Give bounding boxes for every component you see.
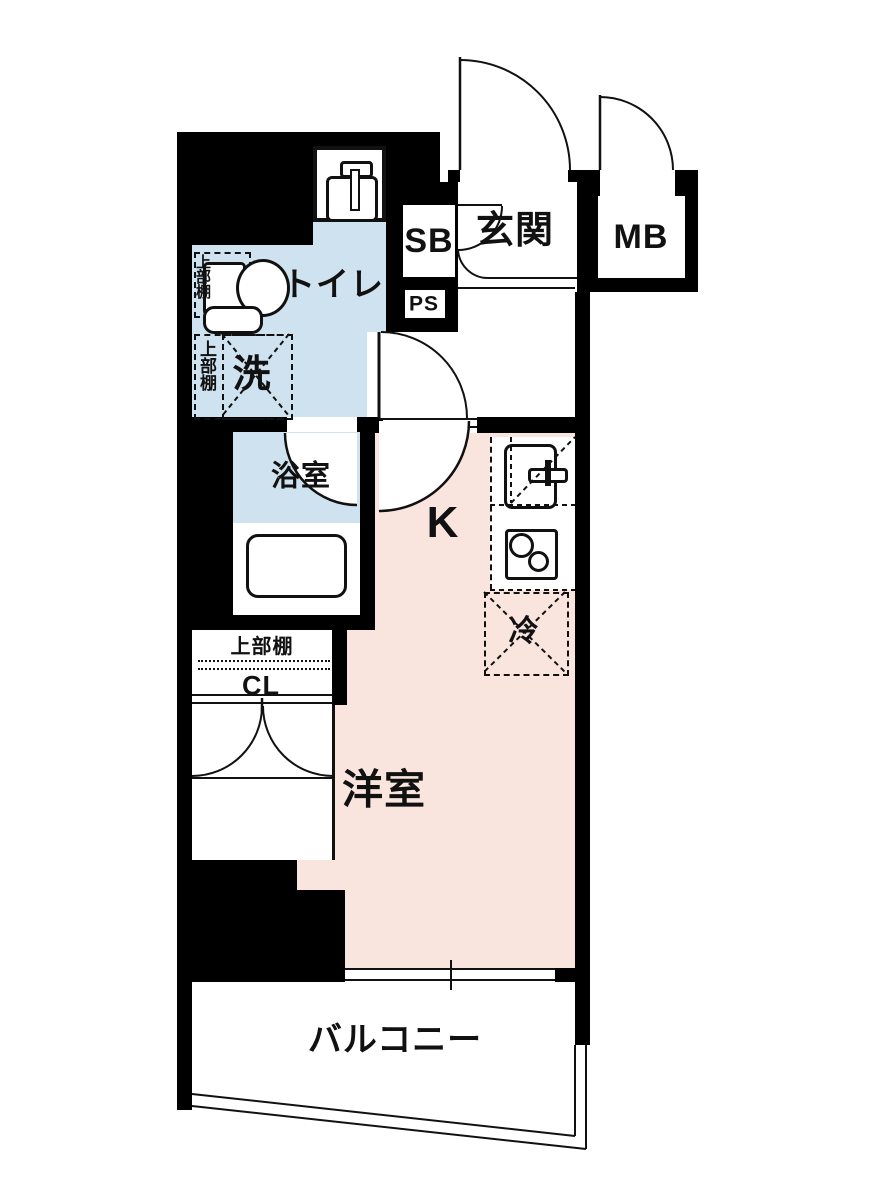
entrance-label: 玄関: [476, 212, 554, 250]
balcony-outline: [192, 1045, 586, 1149]
bathroom-label: 浴室: [271, 463, 331, 492]
balcony-label: バルコニー: [308, 1023, 482, 1057]
meter-box-door-swing: [600, 95, 673, 170]
entrance-door-swing: [460, 57, 570, 170]
fridge-label: 冷: [509, 617, 540, 647]
upper-shelf-label: 上部棚: [195, 254, 210, 299]
pipe-space-label: PS: [409, 294, 439, 315]
toilet-label: トイレ: [282, 268, 384, 301]
plan-lines-overlay: [0, 0, 880, 1200]
meter-box-label: MB: [614, 220, 669, 254]
floor-plan: 玄関 MB SB PS トイレ 上部棚 上部棚 洗 浴室 K 冷 上部棚 CL …: [0, 0, 880, 1200]
upper-shelf-label: 上部棚: [198, 340, 215, 391]
western-room-label: 洋室: [342, 770, 426, 811]
kitchen-counter-dashed-lines: [490, 437, 575, 590]
hall-door-swing: [379, 332, 477, 427]
closet-shelf-label: 上部棚: [231, 637, 294, 657]
closet-double-door-swing: [192, 698, 333, 776]
washer-label: 洗: [232, 356, 271, 394]
shoe-box-label: SB: [404, 224, 453, 258]
closet-label: CL: [242, 673, 280, 700]
kitchen-label: K: [427, 501, 460, 545]
